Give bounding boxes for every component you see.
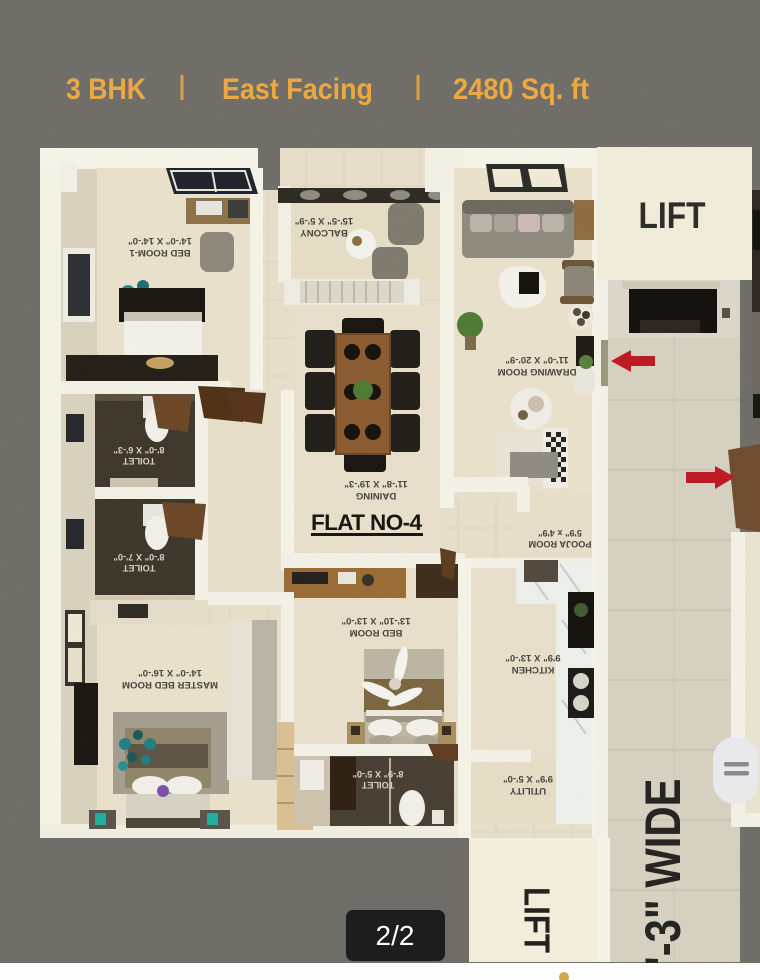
svg-text:3 BHK: 3 BHK [66,73,146,106]
svg-text:2480 Sq. ft: 2480 Sq. ft [453,73,589,106]
svg-text:East Facing: East Facing [222,73,373,106]
svg-text:LIFT: LIFT [516,887,557,953]
svg-text:2/2: 2/2 [376,920,415,951]
